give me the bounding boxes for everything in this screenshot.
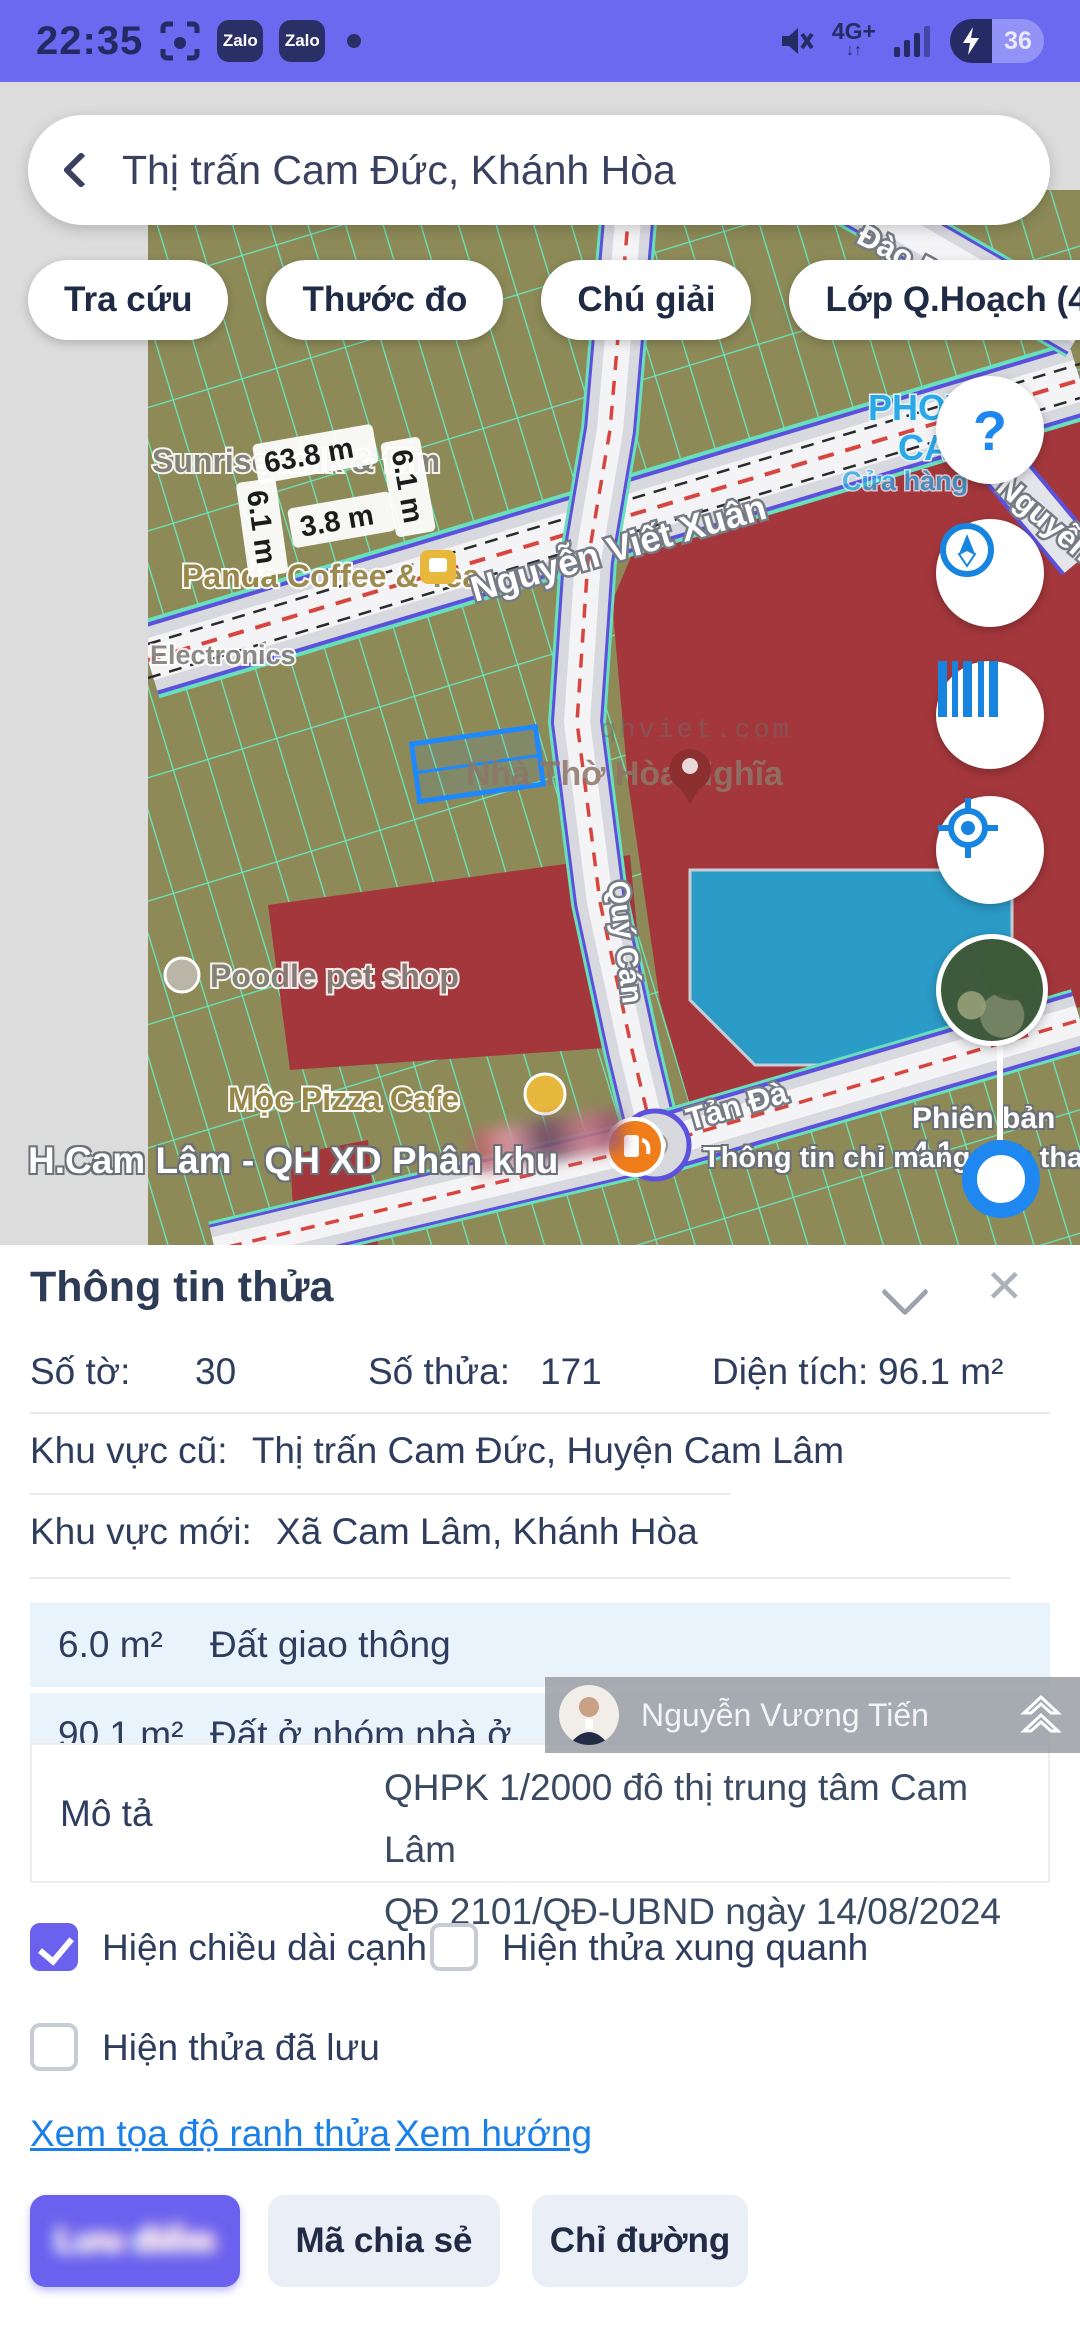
barcode-icon	[936, 661, 1002, 717]
checkbox-edge-length[interactable]	[30, 1923, 78, 1971]
satellite-layer-button[interactable]	[936, 934, 1048, 1046]
save-point-button[interactable]: Lưu điểm	[30, 2195, 240, 2287]
poi-label: Mộc Pizza Cafe	[228, 1081, 459, 1117]
old-area-label: Khu vực cũ:	[30, 1430, 228, 1471]
view-boundary-coords-link[interactable]: Xem tọa độ ranh thửa	[30, 2113, 390, 2155]
map-view[interactable]: Sunrise milk & film Panda Coffee & Tea E…	[0, 82, 1080, 1245]
user-watermark-overlay: Nguyễn Vương Tiến	[545, 1677, 1080, 1753]
share-code-button[interactable]: Mã chia sẻ	[268, 2195, 500, 2287]
close-icon[interactable]: ✕	[985, 1259, 1024, 1313]
cafe-poi-icon-glyph	[429, 558, 447, 572]
app-screen: 22:35 Zalo Zalo 4G+↓↑	[0, 0, 1080, 2340]
mute-icon	[776, 21, 816, 61]
checkbox-label[interactable]: Hiện chiều dài cạnh	[102, 1927, 427, 1969]
status-bar: 22:35 Zalo Zalo 4G+↓↑	[0, 0, 1080, 82]
directions-button[interactable]: Chỉ đường	[532, 2195, 748, 2287]
back-icon[interactable]	[63, 152, 100, 189]
poi-label: Electronics	[150, 640, 296, 670]
compass-icon	[936, 519, 998, 581]
map-region-overlay-label: H.Cam Lâm - QH XD Phân khu	[28, 1140, 558, 1182]
legend-button[interactable]: Chú giải	[541, 260, 751, 340]
my-location-button[interactable]	[936, 796, 1044, 904]
checkbox-saved-parcels[interactable]	[30, 2023, 78, 2071]
charging-bolt-icon	[950, 19, 992, 63]
screenshot-icon	[159, 20, 201, 62]
poi-label: Poodle pet shop	[210, 958, 459, 994]
old-area-row: Khu vực cũ: Thị trấn Cam Đức, Huyện Cam …	[30, 1430, 844, 1472]
sheet-number-label: Số tờ:	[30, 1351, 130, 1393]
checkbox-label[interactable]: Hiện thửa đã lưu	[102, 2027, 380, 2069]
location-marker[interactable]	[962, 1140, 1040, 1218]
measure-button[interactable]: Thước đo	[266, 260, 503, 340]
brand-logo-icon	[1018, 1689, 1064, 1741]
description-label: Mô tả	[60, 1793, 153, 1835]
help-button[interactable]: ?	[936, 376, 1044, 484]
parcel-number-value: 171	[540, 1351, 602, 1393]
zalo-notification-icon: Zalo	[217, 20, 263, 62]
zalo-notification-icon: Zalo	[279, 20, 325, 62]
view-direction-link[interactable]: Xem hướng	[395, 2113, 592, 2155]
new-area-value: Xã Cam Lâm, Khánh Hòa	[276, 1511, 698, 1552]
land-use-type: Đất giao thông	[210, 1624, 451, 1666]
cafe-poi-icon	[525, 1074, 565, 1114]
unloaded-tile-left	[0, 82, 148, 1245]
user-name: Nguyễn Vương Tiến	[641, 1697, 929, 1734]
sheet-title: Thông tin thửa	[30, 1263, 333, 1312]
question-icon: ?	[973, 398, 1007, 463]
land-use-area: 6.0 m²	[30, 1624, 210, 1666]
church-label: Nhà Thờ Hòa Nghĩa	[466, 755, 784, 793]
checkbox-surrounding-parcels[interactable]	[430, 1923, 478, 1971]
compass-button[interactable]	[936, 519, 1044, 627]
map-canvas[interactable]: Sunrise milk & film Panda Coffee & Tea E…	[0, 82, 1080, 1245]
shop-poi-icon	[165, 958, 199, 992]
avatar	[559, 1685, 619, 1745]
notification-dot-icon	[347, 34, 361, 48]
network-type-indicator: 4G+↓↑	[832, 21, 876, 61]
save-point-button-label: Lưu điểm	[55, 2221, 215, 2261]
lookup-button[interactable]: Tra cứu	[28, 260, 228, 340]
marker-stick	[997, 1040, 1003, 1140]
checkbox-label[interactable]: Hiện thửa xung quanh	[502, 1927, 868, 1969]
collapse-sheet-icon[interactable]	[881, 1268, 929, 1316]
sheet-number-value: 30	[195, 1351, 236, 1393]
signal-strength-icon	[892, 21, 934, 61]
locate-icon	[936, 796, 1000, 860]
battery-indicator: 36	[950, 19, 1044, 63]
search-bar[interactable]: Thị trấn Cam Đức, Khánh Hòa	[28, 115, 1050, 225]
new-area-label: Khu vực mới:	[30, 1511, 252, 1552]
land-use-row: 6.0 m² Đất giao thông	[30, 1603, 1050, 1687]
parcel-summary-row: Số tờ: 30 Số thửa: 171 Diện tích: 96.1 m…	[0, 1341, 1080, 1411]
watermark: qhviet.com	[600, 716, 792, 746]
poi-label: Cửa hàng	[842, 466, 968, 496]
area-label: Diện tích:	[712, 1351, 868, 1393]
new-area-row: Khu vực mới: Xã Cam Lâm, Khánh Hòa	[30, 1511, 698, 1553]
description-line1: QHPK 1/2000 đô thị trung tâm Cam Lâm	[384, 1757, 1048, 1881]
planning-layers-button[interactable]: Lớp Q.Hoạch (4)	[789, 260, 1080, 340]
parcel-number-label: Số thửa:	[368, 1351, 510, 1393]
area-value: 96.1 m²	[878, 1351, 1003, 1393]
old-area-value: Thị trấn Cam Đức, Huyện Cam Lâm	[252, 1430, 844, 1471]
parcel-info-sheet: Thông tin thửa ✕ Số tờ: 30 Số thửa: 171 …	[0, 1245, 1080, 2340]
barcode-button[interactable]	[936, 661, 1044, 769]
map-toolbar: Tra cứu Thước đo Chú giải Lớp Q.Hoạch (4…	[28, 260, 1080, 340]
clock: 22:35	[36, 19, 143, 64]
description-row: Mô tả QHPK 1/2000 đô thị trung tâm Cam L…	[30, 1743, 1050, 1883]
search-input[interactable]: Thị trấn Cam Đức, Khánh Hòa	[122, 147, 676, 194]
